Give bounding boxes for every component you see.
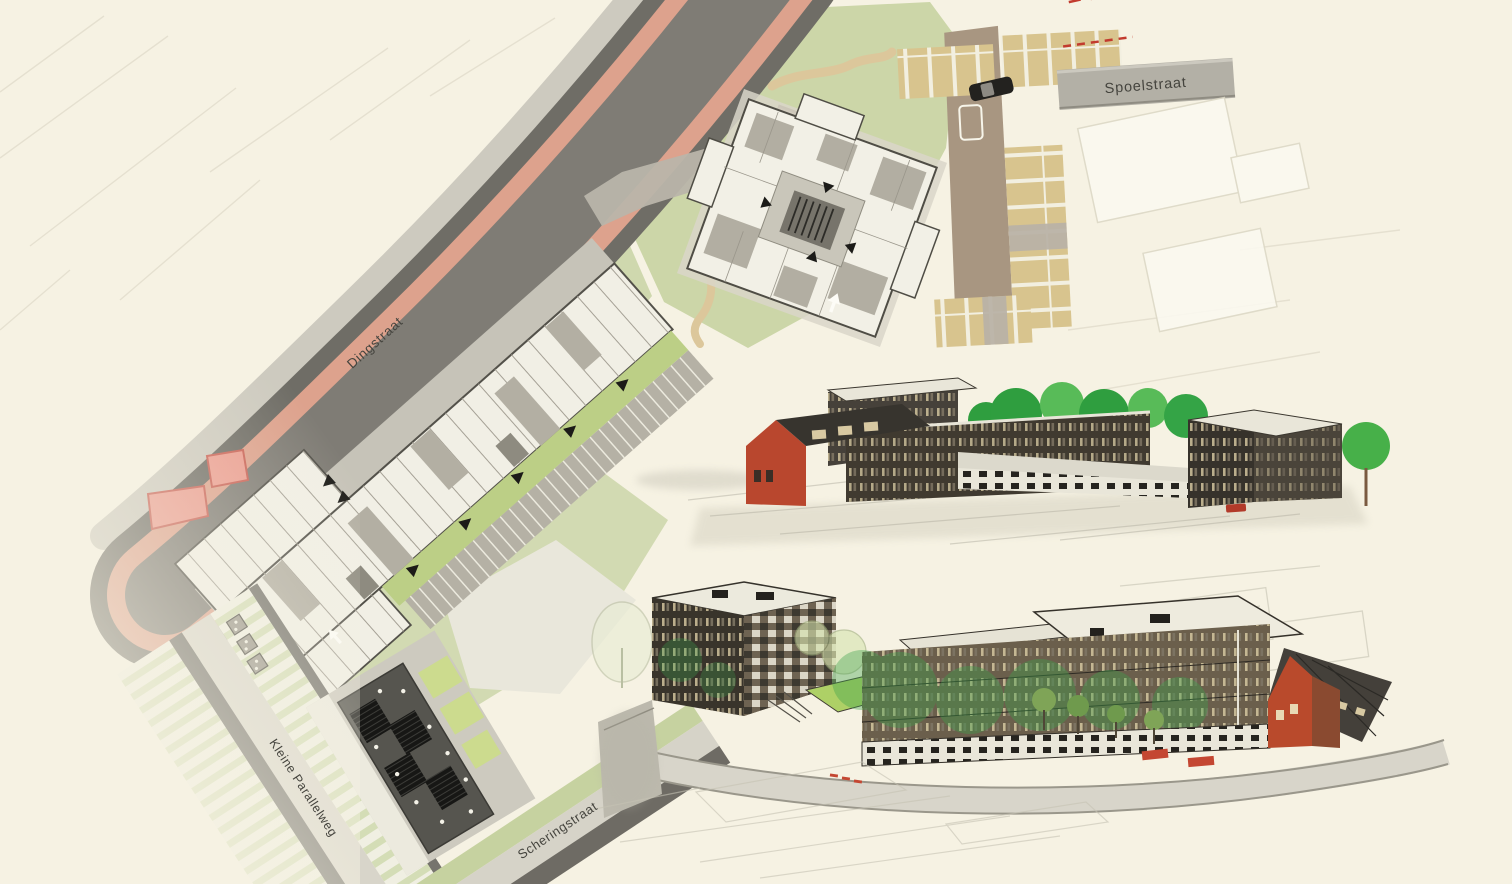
red-car bbox=[1226, 503, 1247, 512]
corner-block-1 bbox=[1188, 410, 1342, 508]
stall-disabled-1 bbox=[1008, 223, 1067, 252]
stall-disabled-2 bbox=[982, 296, 1008, 345]
siteplan-illustration: Dingstraat Spoelstraat Kleine Parallelwe… bbox=[0, 0, 1512, 884]
fade-overlay bbox=[0, 380, 360, 884]
siteplan-canvas: Dingstraat Spoelstraat Kleine Parallelwe… bbox=[0, 0, 1512, 884]
